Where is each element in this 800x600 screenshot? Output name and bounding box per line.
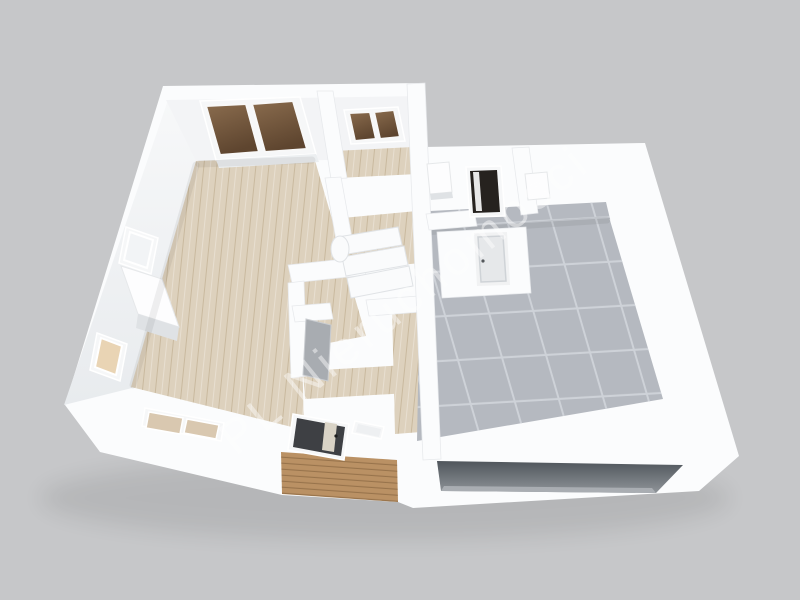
wood-shadow-top [199, 160, 312, 164]
top-room-window [344, 107, 405, 144]
garage-opening [437, 461, 683, 493]
floorplan-svg: PL Nieruchomosci [0, 0, 800, 600]
floorplan-image: PL Nieruchomosci [0, 0, 800, 600]
entry-wall-panel [427, 162, 453, 200]
front-door-handle [334, 434, 337, 437]
